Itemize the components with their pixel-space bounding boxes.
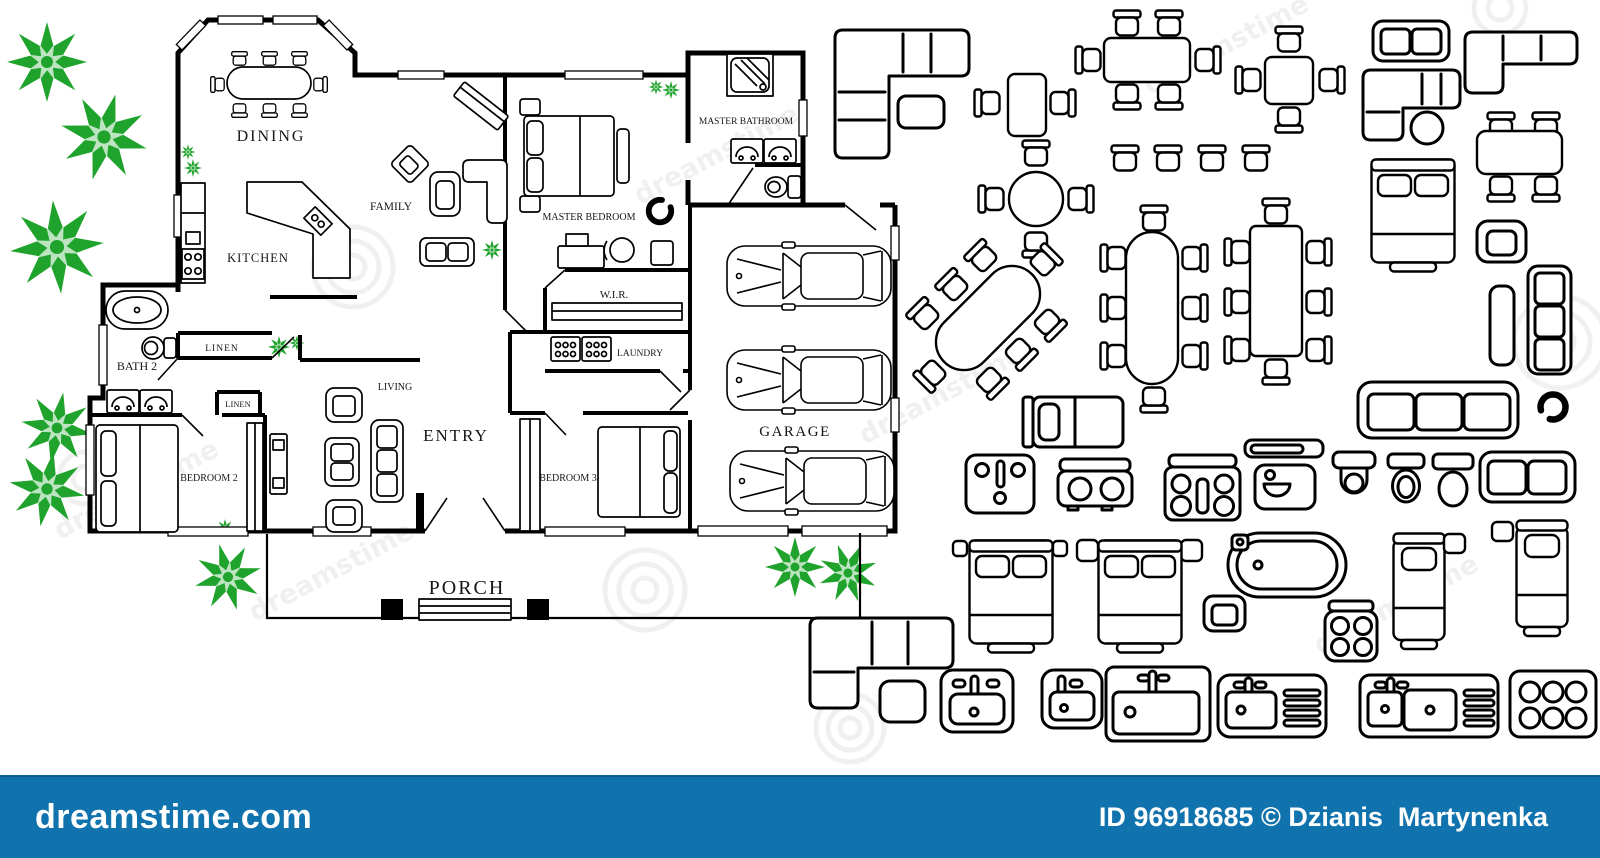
bath2-fixtures [106, 291, 176, 413]
icon-double-bed [1372, 160, 1455, 272]
icon-bathtub-oval [1228, 533, 1346, 597]
room-label-family: FAMILY [370, 201, 413, 213]
icon-double-bed-nightstands [953, 541, 1067, 653]
garage-cars [727, 242, 894, 515]
icon-loveseat-2 [1480, 452, 1575, 502]
room-label-master-bathroom: MASTER BATHROOM [699, 117, 794, 127]
vanity-sink [140, 390, 172, 413]
icon-sectional-sofa-chaise [810, 618, 953, 722]
desk [558, 246, 604, 268]
room-label-linen1: LINEN [205, 344, 239, 354]
icon-stove-4-burner-oven [1165, 455, 1240, 520]
icon-round-table-4-chairs [979, 141, 1094, 258]
dining-set [227, 67, 311, 99]
family-furniture [390, 82, 508, 266]
garage-door [698, 526, 788, 536]
room-label-wir: W.I.R. [600, 289, 629, 301]
icon-washbasin-square-2 [1042, 670, 1102, 728]
icon-sink-unit [1255, 465, 1315, 509]
car-icon [727, 242, 891, 310]
icon-sofa-3-horizontal [1358, 382, 1518, 438]
room-label-laundry: LAUNDRY [617, 349, 663, 359]
icon-loveseat [1373, 21, 1449, 61]
icon-table-4-chairs [1477, 113, 1562, 202]
icon-corner-sofa-pouf [1363, 70, 1460, 144]
icon-long-table-8-chairs [1225, 199, 1332, 385]
icon-corner-sofa [835, 30, 969, 158]
icon-sink-counter [1106, 667, 1210, 741]
garage-door [802, 526, 887, 536]
icon-round-pouf [1411, 112, 1443, 144]
room-label-linen2: LINEN [225, 399, 251, 409]
car-icon [730, 447, 894, 515]
icon-armchair [1477, 221, 1526, 262]
icon-swivel-chair [1537, 389, 1571, 423]
icon-sink-double-drainboard [1360, 675, 1498, 737]
icon-washbasin-cabinet [966, 455, 1034, 513]
icon-sofa-3-vertical [1528, 266, 1571, 374]
car-icon [727, 346, 891, 414]
icon-sink-drainboard [1218, 675, 1326, 737]
room-label-entry: ENTRY [423, 426, 489, 445]
kitchen-counter [181, 182, 350, 283]
wir-shelf [552, 303, 682, 320]
icon-toilet-round [1333, 452, 1375, 493]
icon-ottoman [898, 96, 944, 128]
icon-single-bed-horizontal [1023, 397, 1123, 447]
room-label-kitchen: KITCHEN [227, 251, 289, 265]
icon-chairs-row [1112, 146, 1270, 171]
floor-plan-illustration: dreamstime dreamstime dreamstime dreamst… [0, 0, 1600, 775]
icon-single-bed-vertical-2 [1492, 521, 1568, 637]
icon-armchair-2 [1204, 596, 1245, 631]
icon-toilet-elongated [1433, 454, 1473, 506]
room-label-dining: DINING [237, 128, 306, 145]
image-credit: ID 96918685 © Dzianis Martynenka [1099, 802, 1548, 833]
vanity-sink [731, 139, 763, 163]
porch-post [381, 599, 403, 620]
toilet [142, 337, 176, 359]
room-label-garage: GARAGE [759, 424, 831, 440]
icon-oval-table-8-chairs [1101, 206, 1208, 413]
vanity-sink [107, 390, 139, 413]
room-label-bedroom3: BEDROOM 3 [539, 473, 597, 484]
icon-table-6-chairs [1076, 11, 1221, 110]
toilet [765, 176, 801, 198]
entry-wall-stub [416, 493, 424, 531]
icon-toilet-oval [1388, 454, 1424, 502]
porch-post [527, 599, 549, 620]
room-label-bath2: BATH 2 [117, 359, 157, 373]
icon-stove-6-burner [1510, 671, 1596, 737]
room-label-living: LIVING [378, 382, 412, 393]
icon-washbasin-square [941, 670, 1013, 732]
icon-cooktop-4-burner [1325, 601, 1377, 661]
living-furniture [270, 388, 403, 532]
icon-cooktop-2-burner [1058, 459, 1132, 510]
porch-steps [419, 599, 511, 620]
icon-wall-shelf [1245, 440, 1323, 457]
room-label-porch: PORCH [429, 577, 506, 599]
dreamstime-logo: dreamstime.com [35, 798, 312, 837]
stove [182, 249, 204, 279]
icon-ottoman-2 [880, 681, 925, 722]
laundry-appliances [551, 337, 611, 361]
room-label-master-bedroom: MASTER BEDROOM [542, 212, 635, 223]
icon-bench [1490, 286, 1514, 365]
room-label-bedroom2: BEDROOM 2 [180, 473, 238, 484]
desk-chair [610, 238, 634, 262]
vanity-sink [764, 139, 796, 163]
icon-corner-sofa-2 [1465, 32, 1577, 93]
watermark-bar: dreamstime.com ID 96918685 © Dzianis Mar… [0, 775, 1600, 858]
icon-double-bed-nightstands-2 [1077, 540, 1202, 653]
icon-table-2-chairs [975, 74, 1076, 136]
